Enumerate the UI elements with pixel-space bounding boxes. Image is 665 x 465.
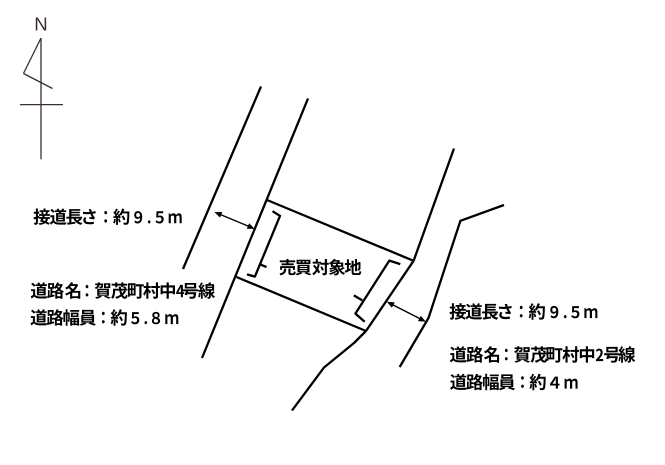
svg-text:N: N xyxy=(34,13,47,34)
